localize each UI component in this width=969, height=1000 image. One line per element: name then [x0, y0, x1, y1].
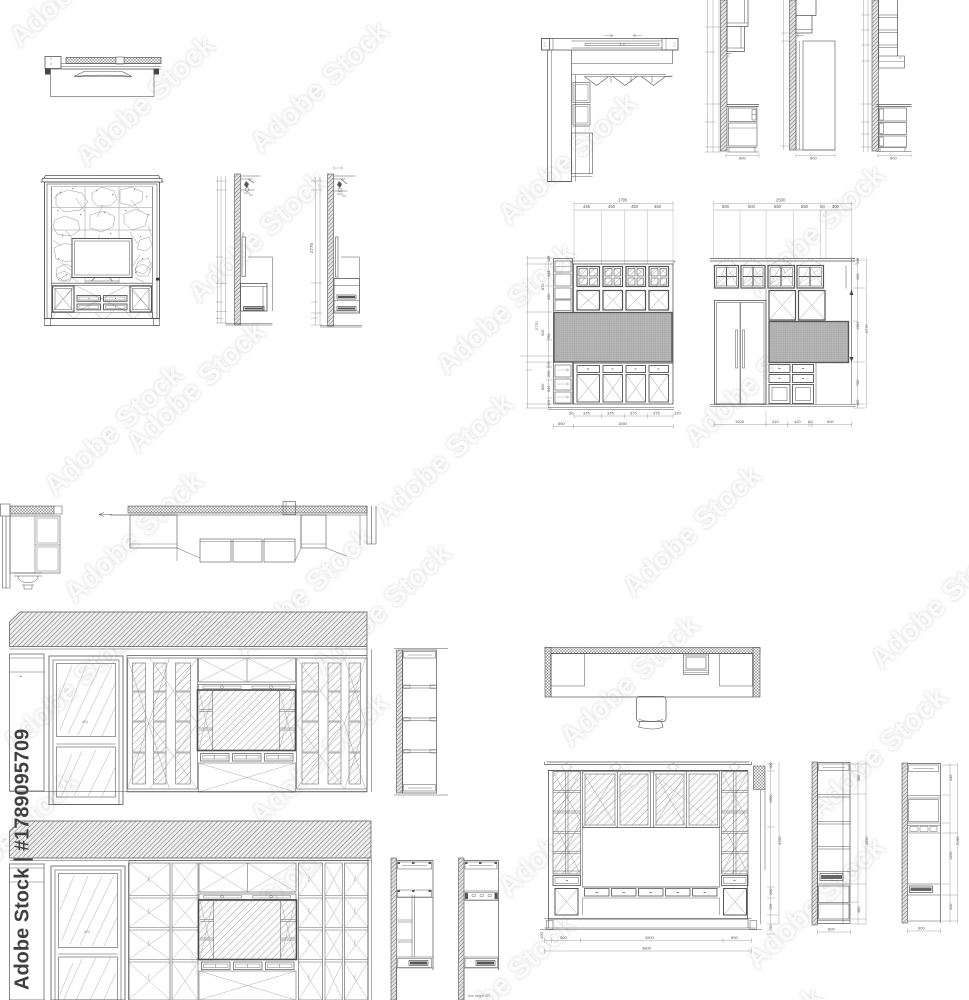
svg-text:126: 126	[856, 258, 860, 264]
svg-text:Adobe Stock: Adobe Stock	[3, 0, 155, 54]
svg-text:550: 550	[801, 204, 809, 209]
svg-text:433: 433	[856, 274, 860, 280]
svg-text:1550: 1550	[618, 421, 628, 426]
svg-text:2770: 2770	[865, 325, 869, 333]
svg-text:Adobe Stock: Adobe Stock	[864, 531, 969, 676]
svg-text:d04: d04	[82, 720, 88, 724]
svg-text:50: 50	[808, 419, 813, 424]
svg-text:2050: 2050	[865, 837, 869, 845]
svg-text:Adobe Stock: Adobe Stock	[616, 459, 768, 604]
svg-text:430: 430	[949, 775, 953, 781]
svg-text:1005: 1005	[735, 419, 745, 424]
svg-text:850: 850	[541, 384, 545, 390]
svg-text:375: 375	[607, 411, 614, 416]
svg-text:500: 500	[560, 935, 567, 940]
svg-text:756: 756	[547, 334, 551, 340]
svg-text:2150: 2150	[956, 837, 960, 845]
svg-text:2770: 2770	[535, 322, 539, 330]
svg-text:Adobe Stock: Adobe Stock	[430, 909, 582, 1000]
svg-text:600: 600	[918, 926, 925, 931]
svg-text:1361: 1361	[856, 322, 860, 330]
svg-text:Adobe Stock: Adobe Stock	[802, 681, 954, 826]
svg-text:650: 650	[558, 421, 565, 426]
svg-text:Adobe Stock | #1789095709: Adobe Stock | #1789095709	[12, 729, 34, 990]
svg-text:410: 410	[794, 419, 801, 424]
svg-text:600: 600	[890, 156, 897, 161]
svg-text:1900: 1900	[769, 795, 773, 803]
svg-text:50: 50	[569, 411, 574, 416]
svg-text:Adobe Stock: Adobe Stock	[368, 387, 520, 532]
svg-text:926: 926	[541, 330, 545, 336]
svg-text:600: 600	[827, 419, 834, 424]
svg-text:375: 375	[630, 411, 637, 416]
svg-text:870: 870	[541, 284, 545, 290]
svg-text:350: 350	[857, 775, 861, 781]
svg-text:600: 600	[828, 927, 835, 932]
svg-text:Adobe Stock: Adobe Stock	[182, 165, 334, 310]
svg-text:d04: d04	[84, 930, 90, 934]
svg-text:450: 450	[608, 204, 616, 209]
svg-text:125: 125	[547, 256, 551, 262]
svg-text:410: 410	[772, 419, 779, 424]
svg-text:2500: 2500	[776, 198, 786, 203]
svg-text:725: 725	[769, 904, 773, 910]
svg-text:2770: 2770	[309, 242, 314, 253]
svg-text:Adobe Stock: Adobe Stock	[554, 609, 706, 754]
svg-text:600: 600	[739, 156, 746, 161]
svg-text:375: 375	[583, 411, 590, 416]
svg-text:300: 300	[832, 204, 840, 209]
svg-text:170: 170	[547, 362, 551, 368]
svg-text:1795: 1795	[618, 198, 628, 203]
svg-text:430: 430	[547, 294, 551, 300]
svg-text:200: 200	[769, 889, 773, 895]
svg-text:550: 550	[774, 204, 782, 209]
svg-text:floor height 100: floor height 100	[468, 994, 490, 998]
svg-text:120: 120	[674, 411, 681, 416]
svg-text:500: 500	[731, 935, 738, 940]
svg-text:Adobe Stock: Adobe Stock	[678, 981, 830, 1000]
svg-text:433: 433	[547, 271, 551, 277]
svg-text:750: 750	[856, 380, 860, 386]
svg-text:540: 540	[547, 386, 551, 392]
svg-text:2600: 2600	[645, 935, 655, 940]
svg-text:1250: 1250	[949, 852, 953, 860]
svg-text:600: 600	[810, 156, 817, 161]
svg-text:450: 450	[631, 204, 639, 209]
svg-text:200: 200	[547, 371, 551, 377]
svg-text:3150: 3150	[778, 837, 782, 845]
svg-text:100: 100	[856, 400, 860, 406]
svg-text:750: 750	[769, 925, 773, 931]
svg-text:360: 360	[857, 907, 861, 913]
svg-text:50: 50	[820, 204, 825, 209]
svg-text:445: 445	[583, 204, 591, 209]
svg-text:160: 160	[769, 763, 773, 769]
svg-text:100: 100	[539, 932, 544, 939]
svg-text:Adobe Stock: Adobe Stock	[244, 15, 396, 160]
svg-text:Adobe Stock: Adobe Stock	[58, 465, 210, 610]
svg-text:340: 340	[949, 904, 953, 910]
svg-text:3800: 3800	[642, 946, 652, 951]
svg-text:Adobe Stock: Adobe Stock	[70, 29, 222, 174]
svg-text:500: 500	[722, 204, 730, 209]
svg-text:375: 375	[653, 411, 660, 416]
svg-text:110: 110	[547, 400, 551, 406]
svg-text:450: 450	[654, 204, 662, 209]
svg-text:500: 500	[748, 204, 756, 209]
